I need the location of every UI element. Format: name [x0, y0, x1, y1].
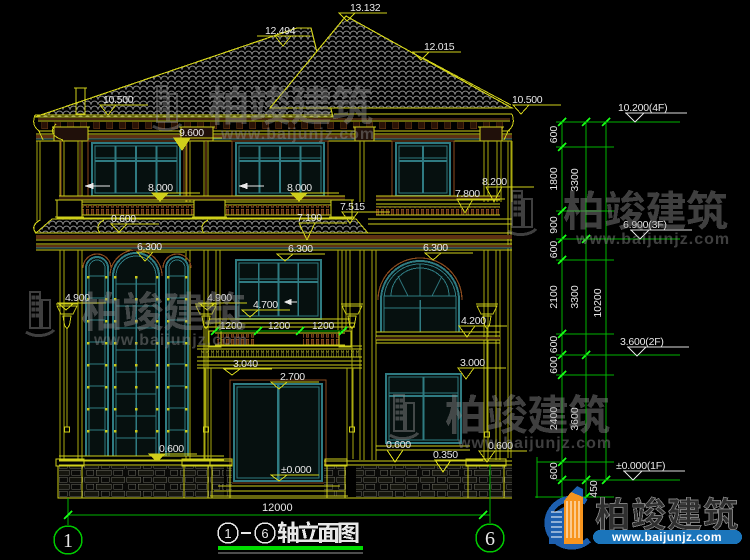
svg-text:900: 900	[548, 216, 560, 234]
svg-text:1200: 1200	[268, 321, 291, 332]
svg-text:10.500: 10.500	[103, 94, 134, 106]
svg-text:0.600: 0.600	[159, 443, 184, 455]
svg-text:12000: 12000	[262, 502, 293, 514]
svg-text:7.800: 7.800	[455, 188, 480, 200]
svg-text:1800: 1800	[548, 167, 560, 191]
svg-text:www.baijunjz.com: www.baijunjz.com	[457, 435, 612, 452]
svg-text:8.200: 8.200	[482, 176, 507, 188]
svg-text:0.600: 0.600	[386, 439, 411, 451]
svg-text:12.494: 12.494	[265, 25, 296, 37]
svg-text:7.190: 7.190	[297, 212, 322, 224]
svg-text:1: 1	[224, 526, 231, 541]
svg-text:450: 450	[588, 480, 600, 498]
svg-text:2.700: 2.700	[280, 371, 305, 383]
svg-text:12.015: 12.015	[424, 41, 455, 53]
svg-text:600: 600	[548, 336, 560, 354]
svg-text:600: 600	[548, 241, 560, 259]
svg-text:www.baijunjz.com: www.baijunjz.com	[575, 231, 730, 248]
svg-text:6: 6	[485, 528, 495, 550]
svg-text:600: 600	[548, 462, 560, 480]
svg-text:10200: 10200	[592, 288, 604, 317]
svg-text:8.000: 8.000	[148, 182, 173, 194]
svg-text:600: 600	[548, 126, 560, 144]
svg-text:3.040: 3.040	[233, 358, 258, 370]
svg-text:6: 6	[261, 526, 268, 541]
svg-text:www.baijunjz.com: www.baijunjz.com	[220, 126, 375, 143]
svg-text:www.baijunjz.com: www.baijunjz.com	[93, 332, 248, 349]
svg-text:4.700: 4.700	[253, 299, 278, 311]
svg-text:1: 1	[63, 530, 73, 552]
svg-text:6.300: 6.300	[137, 241, 162, 253]
svg-text:2100: 2100	[548, 285, 560, 309]
svg-text:4.200: 4.200	[461, 315, 486, 327]
svg-text:7.515: 7.515	[340, 201, 365, 213]
svg-text:13.132: 13.132	[350, 2, 381, 14]
svg-text:±0.000(1F): ±0.000(1F)	[616, 460, 665, 472]
svg-text:9.600: 9.600	[179, 127, 204, 139]
svg-text:10.200(4F): 10.200(4F)	[618, 102, 667, 114]
svg-text:600: 600	[548, 356, 560, 374]
svg-text:3.000: 3.000	[460, 357, 485, 369]
svg-text:1200: 1200	[312, 321, 335, 332]
svg-text:6.300: 6.300	[288, 243, 313, 255]
svg-text:www.baijunjz.com: www.baijunjz.com	[611, 530, 722, 544]
svg-text:8.000: 8.000	[287, 182, 312, 194]
svg-text:0.350: 0.350	[433, 449, 458, 461]
svg-text:6.300: 6.300	[423, 242, 448, 254]
svg-text:0.600: 0.600	[111, 213, 136, 225]
svg-text:±0.000: ±0.000	[281, 464, 312, 476]
svg-text:3300: 3300	[569, 285, 581, 309]
svg-text:10.500: 10.500	[512, 94, 543, 106]
svg-text:3.600(2F): 3.600(2F)	[620, 336, 664, 348]
svg-text:3300: 3300	[569, 168, 581, 192]
